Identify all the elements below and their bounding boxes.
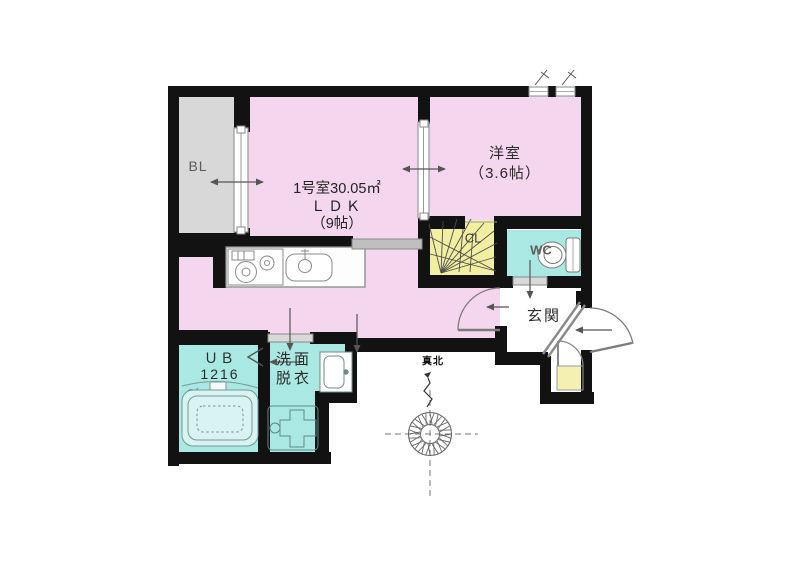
true-north-label: 真北 [422,353,444,368]
wall-segment [547,276,592,288]
ldk-label: 1号室30.05㎡ ＬＤＫ （9帖） [293,181,381,234]
wall-segment [418,86,430,124]
ldk-size: （9帖） [293,216,381,234]
wall-segment [258,332,270,452]
wall-segment [497,216,592,229]
wall-segment [576,291,592,305]
wall-segment [548,86,556,97]
wall-segment [495,276,513,288]
ldk-name-area: 1号室30.05㎡ [293,181,381,199]
entry-door-icon [576,308,633,352]
wall-segment [234,228,250,250]
closet-label-text: CL [465,231,482,246]
wc-label-text: WC [530,243,552,258]
washroom-name-1: 洗面 [276,350,312,369]
washroom-name-2: 脱衣 [276,369,312,388]
ldk-type: ＬＤＫ [293,198,381,216]
western-room-size: （3.6帖） [469,164,541,184]
balcony-label: BL [188,158,207,174]
balcony-label-text: BL [188,158,207,174]
entrance-label: 玄関 [527,305,561,326]
bath-size: 1216 [200,366,239,382]
floor-plan: BL 1号室30.05㎡ ＬＤＫ （9帖） 洋室 （3.6帖） CL WC 玄関… [0,0,800,565]
wall-segment [213,243,226,288]
entrance-label-text: 玄関 [527,305,561,326]
true-north-text: 真北 [422,353,444,368]
wall-segment [168,86,179,466]
closet-label: CL [465,231,482,246]
compass-icon [385,372,478,496]
bath-name: ＵＢ [200,350,239,366]
wall-segment [168,452,331,464]
western-room-label: 洋室 （3.6帖） [469,144,541,184]
wall-segment [168,330,268,345]
wall-segment [168,243,215,257]
wall-segment [353,338,500,352]
wall-segment [315,391,329,464]
room-fill-shoebox [557,366,583,390]
wall-segment [168,86,529,97]
wall-segment [243,236,353,247]
wall-segment [418,216,465,229]
bath-label: ＵＢ 1216 [200,350,239,382]
wall-segment [581,86,592,308]
north-arrow-icon [424,372,431,378]
wc-label: WC [530,243,552,258]
wall-segment [234,86,250,132]
washroom-label: 洗面 脱衣 [276,350,312,388]
wall-segment [495,326,507,365]
wall-segment [418,275,507,288]
wall-segment [310,332,350,344]
western-room-name: 洋室 [469,144,541,164]
